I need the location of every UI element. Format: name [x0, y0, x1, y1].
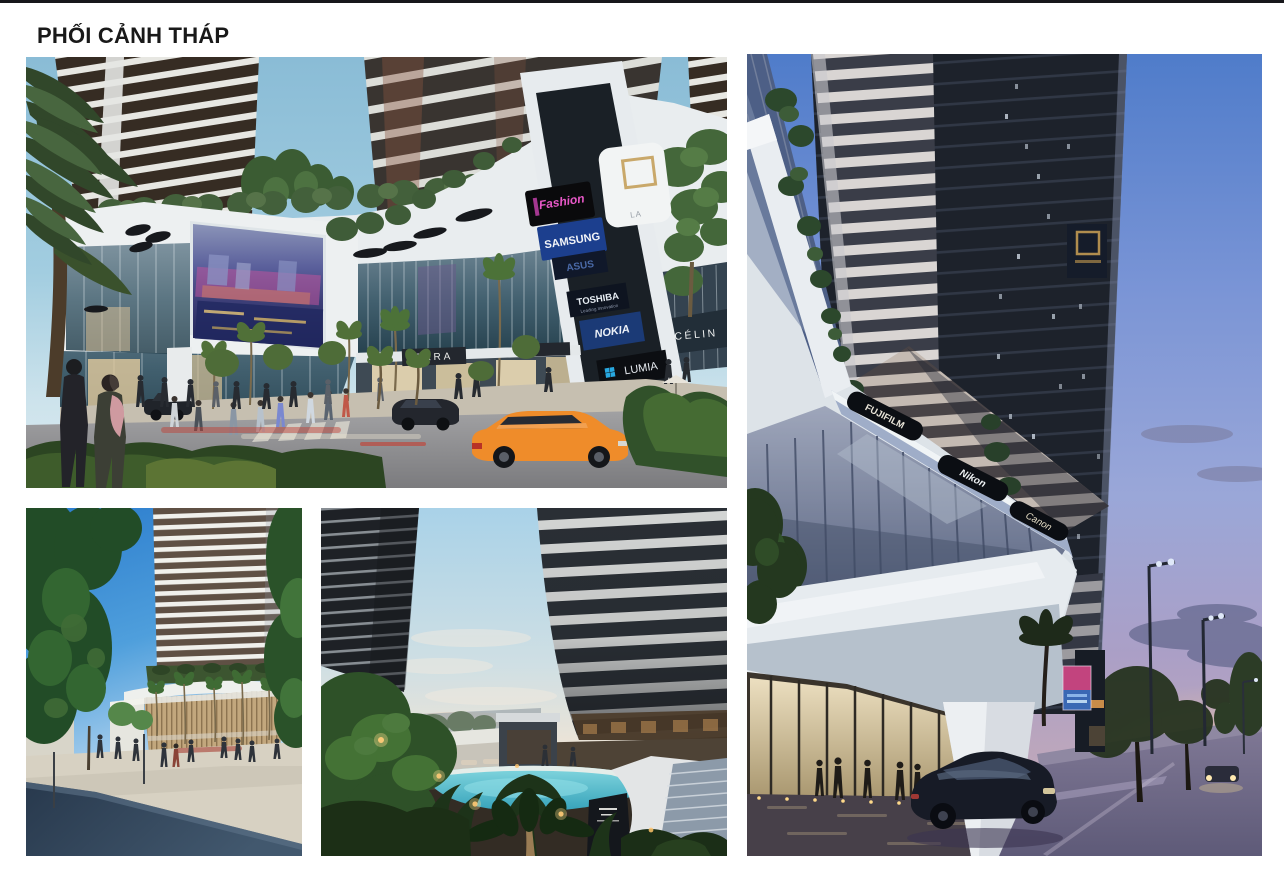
svg-text:LA: LA: [630, 209, 643, 219]
